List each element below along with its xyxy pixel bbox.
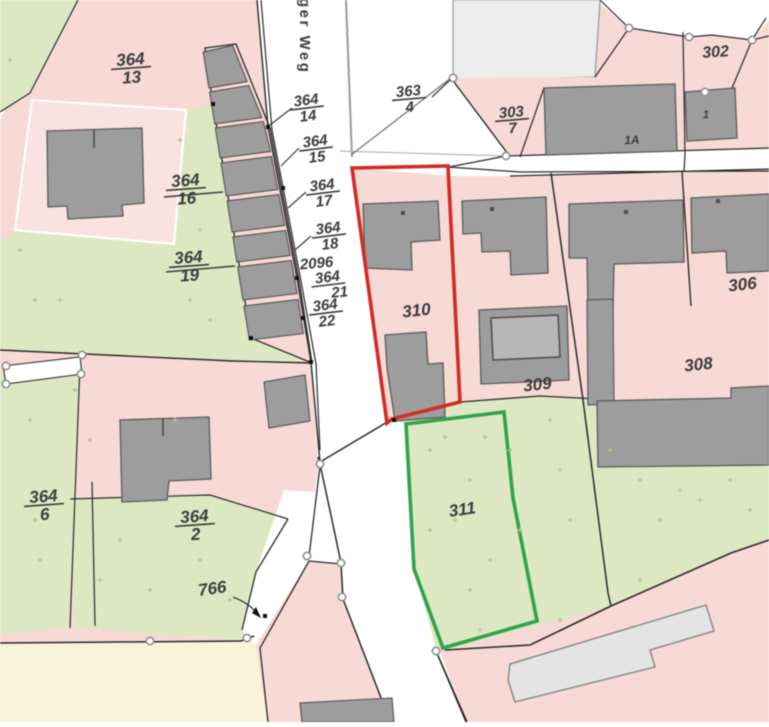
svg-text:766: 766 — [197, 577, 228, 600]
svg-text:14: 14 — [299, 107, 318, 126]
svg-text:2096: 2096 — [298, 254, 334, 274]
svg-text:18: 18 — [321, 235, 340, 254]
svg-text:302: 302 — [702, 43, 730, 62]
svg-text:1A: 1A — [624, 133, 640, 148]
svg-text:15: 15 — [308, 148, 327, 167]
svg-text:311: 311 — [447, 498, 476, 521]
svg-text:19: 19 — [180, 265, 201, 285]
svg-text:ger Weg: ger Weg — [296, 0, 313, 74]
svg-text:310: 310 — [401, 300, 432, 322]
svg-text:2: 2 — [189, 525, 201, 545]
svg-text:306: 306 — [727, 274, 758, 296]
svg-text:22: 22 — [317, 312, 337, 331]
svg-text:13: 13 — [122, 67, 143, 87]
svg-text:6: 6 — [39, 505, 50, 525]
svg-text:308: 308 — [683, 354, 714, 376]
svg-text:309: 309 — [522, 374, 553, 396]
svg-text:17: 17 — [315, 192, 334, 211]
svg-text:1: 1 — [703, 109, 710, 121]
svg-text:16: 16 — [177, 188, 198, 208]
